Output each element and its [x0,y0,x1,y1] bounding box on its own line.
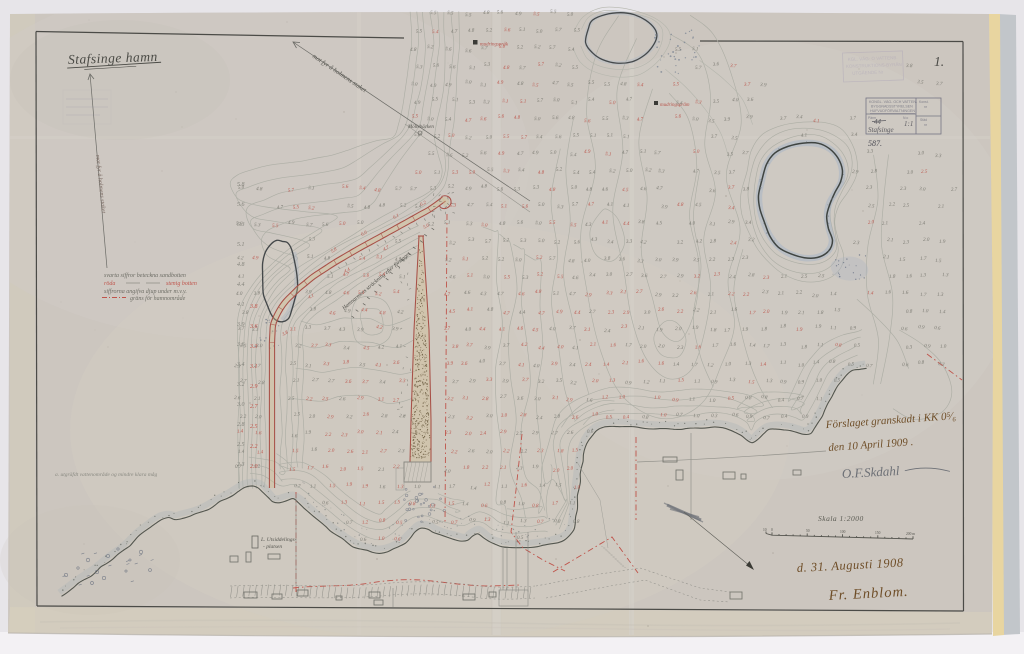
svg-text:5.5: 5.5 [673,81,680,88]
svg-text:1.9: 1.9 [781,310,788,316]
svg-text:1.9: 1.9 [305,429,312,436]
svg-text:5.7: 5.7 [410,186,417,192]
svg-text:4.8: 4.8 [325,290,332,296]
svg-text:4.1: 4.1 [623,203,629,209]
svg-text:3.4: 3.4 [607,239,614,246]
svg-text:2.7: 2.7 [380,448,388,455]
svg-text:2.8: 2.8 [554,413,561,420]
svg-text:3.9: 3.9 [447,360,454,367]
svg-text:1.6: 1.6 [322,464,329,470]
svg-text:1.9: 1.9 [362,483,370,490]
svg-text:5.0: 5.0 [550,150,557,156]
svg-text:4.8: 4.8 [481,183,488,190]
svg-text:1.3: 1.3 [729,377,736,383]
svg-text:5.7: 5.7 [549,45,556,51]
svg-text:4.8: 4.8 [468,28,475,34]
svg-text:1.1: 1.1 [503,520,510,527]
svg-text:1.5: 1.5 [899,257,906,263]
svg-text:5.4: 5.4 [393,289,400,295]
svg-text:2.3: 2.3 [728,256,736,263]
svg-text:3.0: 3.0 [907,169,914,176]
svg-text:3.0: 3.0 [644,310,651,316]
svg-text:4.0: 4.0 [479,358,487,365]
svg-text:1.1: 1.1 [310,484,317,490]
svg-text:1.3: 1.3 [780,341,787,348]
svg-text:5.4: 5.4 [486,202,493,208]
svg-text:0.8: 0.8 [835,342,843,349]
svg-text:3.5: 3.5 [714,170,721,176]
svg-text:3.8: 3.8 [604,256,611,262]
svg-text:4.1: 4.1 [518,362,525,369]
svg-text:2.1: 2.1 [293,378,300,384]
svg-text:2.0: 2.0 [486,449,493,456]
svg-text:5.5: 5.5 [602,116,609,122]
svg-text:2.4: 2.4 [585,362,592,368]
svg-text:5.4: 5.4 [379,272,386,278]
svg-text:4.9: 4.9 [414,100,421,106]
svg-text:1.3: 1.3 [942,272,949,278]
svg-text:3.6: 3.6 [517,396,524,402]
svg-text:1.3: 1.3 [920,272,928,279]
svg-text:4.8: 4.8 [256,186,263,192]
svg-text:2.2: 2.2 [393,464,400,470]
svg-text:3.7: 3.7 [499,361,506,367]
svg-text:0.4: 0.4 [778,397,786,404]
svg-text:5.0: 5.0 [538,238,545,244]
svg-text:1.3: 1.3 [341,499,348,506]
svg-text:1.5: 1.5 [378,500,385,506]
svg-text:5.0: 5.0 [448,133,455,139]
svg-text:4.5: 4.5 [622,187,629,193]
svg-text:4.7: 4.7 [467,202,474,208]
svg-text:5.6: 5.6 [480,150,487,156]
svg-text:2.3: 2.3 [903,239,911,246]
svg-text:3.5: 3.5 [556,378,563,384]
svg-text:1.8: 1.8 [557,448,564,455]
svg-text:0.6: 0.6 [901,326,908,332]
svg-text:1.9: 1.9 [532,464,539,470]
svg-text:4.4: 4.4 [237,281,245,288]
svg-text:0.7: 0.7 [797,396,804,402]
svg-text:3.5: 3.5 [727,151,734,158]
svg-text:4.2: 4.2 [640,239,648,246]
svg-text:4.9: 4.9 [344,308,351,314]
svg-text:4.8: 4.8 [568,115,575,121]
svg-text:3.7: 3.7 [569,325,576,331]
svg-text:1.4: 1.4 [830,291,837,297]
svg-text:5.3: 5.3 [520,238,527,244]
svg-text:5.2: 5.2 [517,44,524,51]
svg-text:5.6: 5.6 [584,118,591,124]
svg-text:0.7: 0.7 [763,415,771,422]
svg-text:4.0: 4.0 [689,220,696,227]
svg-text:2.5: 2.5 [294,411,301,418]
svg-text:O.F.Skdahl: O.F.Skdahl [841,463,900,481]
svg-text:3.2: 3.2 [672,293,679,299]
svg-text:5.4: 5.4 [676,100,683,107]
svg-text:5.5: 5.5 [549,220,556,226]
svg-text:4.7: 4.7 [626,96,634,103]
svg-text:5.1: 5.1 [462,256,469,263]
svg-text:3.8: 3.8 [249,304,258,310]
svg-text:2.0: 2.0 [567,465,574,472]
svg-text:2.8: 2.8 [482,396,489,402]
svg-text:3.7: 3.7 [311,343,318,349]
svg-text:4.4: 4.4 [574,310,581,316]
svg-text:2.0: 2.0 [763,309,770,315]
svg-text:5.3: 5.3 [254,222,261,228]
svg-text:3.7: 3.7 [452,379,459,385]
svg-text:5.5: 5.5 [567,82,574,89]
svg-text:5.2: 5.2 [308,205,315,212]
svg-text:2.3: 2.3 [445,430,452,436]
svg-text:1.8: 1.8 [889,274,896,280]
svg-text:1.1: 1.1 [434,484,441,490]
svg-text:5.6: 5.6 [433,62,440,69]
svg-text:3.0: 3.0 [357,429,364,436]
svg-text:5.2: 5.2 [462,153,469,159]
svg-text:3.1: 3.1 [620,289,627,295]
svg-text:5.0: 5.0 [481,222,489,229]
svg-text:2.1: 2.1 [778,290,785,297]
svg-text:0.9: 0.9 [802,414,809,420]
svg-text:4.3: 4.3 [591,237,598,243]
svg-text:4.2: 4.2 [521,342,528,348]
svg-text:3.7: 3.7 [362,379,369,385]
svg-text:4.2: 4.2 [237,255,244,261]
svg-text:a. utgräfdt vattenområde og mi: a. utgräfdt vattenområde og mindre klara… [55,471,158,478]
svg-text:5.6: 5.6 [322,222,329,228]
svg-text:1.0: 1.0 [922,308,929,314]
svg-text:2.7: 2.7 [626,272,633,278]
svg-text:3.4: 3.4 [796,114,803,120]
svg-text:5.1: 5.1 [434,170,441,176]
svg-text:3.3: 3.3 [305,324,312,331]
svg-text:5.6: 5.6 [342,184,349,190]
svg-text:3.9: 3.9 [746,114,753,120]
svg-text:3.8: 3.8 [906,63,913,69]
svg-text:4.9: 4.9 [556,309,563,315]
svg-text:1.7: 1.7 [307,465,314,472]
svg-text:5.0: 5.0 [411,81,419,88]
svg-text:5.6: 5.6 [574,239,582,246]
svg-text:5.1: 5.1 [605,151,612,158]
svg-text:2.0: 2.0 [675,326,682,332]
svg-text:3.1: 3.1 [305,363,312,370]
svg-text:4.7: 4.7 [622,150,629,156]
svg-text:4.8: 4.8 [620,81,627,88]
svg-text:5.7: 5.7 [549,256,556,262]
svg-text:3.0: 3.0 [919,186,927,193]
svg-text:4.1: 4.1 [499,326,506,333]
svg-text:5.7: 5.7 [306,222,313,229]
svg-text:5.0: 5.0 [515,257,522,264]
svg-text:5.1: 5.1 [444,220,451,226]
svg-text:4.1: 4.1 [607,201,614,208]
svg-text:2.7: 2.7 [328,378,335,384]
svg-text:3.4: 3.4 [589,272,596,279]
svg-text:1.5: 1.5 [357,466,364,472]
svg-text:5.6: 5.6 [363,273,370,279]
svg-text:5.7: 5.7 [485,238,492,245]
svg-text:4.6: 4.6 [572,275,579,281]
svg-text:5.5: 5.5 [573,132,580,139]
svg-text:5.2: 5.2 [434,133,441,140]
svg-text:2.9: 2.9 [585,292,592,299]
svg-text:1.8: 1.8 [801,344,809,351]
svg-text:5.0: 5.0 [626,168,633,174]
svg-text:1.8: 1.8 [817,310,824,316]
svg-text:5.2: 5.2 [400,203,407,209]
svg-text:3.1: 3.1 [552,395,558,401]
svg-text:2.7: 2.7 [551,430,559,437]
svg-text:3.8: 3.8 [242,310,249,316]
svg-text:2.8: 2.8 [710,238,718,245]
svg-text:5.4: 5.4 [359,256,366,262]
svg-text:2.3: 2.3 [677,345,684,351]
svg-text:0.5: 0.5 [834,377,841,384]
svg-text:2.4: 2.4 [392,429,399,435]
svg-text:2.6: 2.6 [567,430,574,436]
svg-text:3.2: 3.2 [570,380,577,387]
svg-text:5.5: 5.5 [487,167,494,173]
svg-text:3.6: 3.6 [641,273,648,279]
svg-text:1.4: 1.4 [539,483,546,489]
svg-text:5.4: 5.4 [637,82,644,88]
svg-text:1.4: 1.4 [257,449,265,456]
svg-text:2.1: 2.1 [708,291,715,298]
svg-text:1.4: 1.4 [238,449,245,455]
svg-text:5.4: 5.4 [573,170,580,176]
svg-text:0.8: 0.8 [906,309,913,315]
svg-text:2.3: 2.3 [742,255,749,261]
svg-text:5.0: 5.0 [571,184,578,191]
svg-text:2.9: 2.9 [357,395,364,402]
svg-text:2.3: 2.3 [516,465,524,472]
svg-text:5.2: 5.2 [645,167,652,174]
svg-text:5.1: 5.1 [623,134,629,140]
svg-text:5.2: 5.2 [427,44,434,50]
svg-text:2.0: 2.0 [923,237,930,243]
svg-text:5.6: 5.6 [675,113,682,120]
svg-text:1.6: 1.6 [586,397,594,404]
svg-text:5.3: 5.3 [416,64,423,71]
svg-text:5.0: 5.0 [692,116,700,123]
svg-text:1.3: 1.3 [484,517,491,523]
svg-text:3.2: 3.2 [748,237,755,243]
svg-text:2.1: 2.1 [798,310,804,316]
svg-text:1.6: 1.6 [902,290,909,296]
svg-text:2.7: 2.7 [500,394,507,400]
svg-text:5.4: 5.4 [518,167,525,174]
svg-text:0.6: 0.6 [481,503,488,509]
svg-text:3.2: 3.2 [447,396,454,402]
svg-text:5.0: 5.0 [465,79,473,86]
svg-text:Stafsinge: Stafsinge [868,126,894,134]
svg-text:3.6: 3.6 [236,342,245,348]
svg-text:4.1: 4.1 [801,132,808,139]
svg-text:0.6: 0.6 [322,500,329,507]
svg-text:1.6: 1.6 [610,342,618,349]
svg-text:5.4: 5.4 [589,170,596,176]
svg-text:3.6: 3.6 [709,188,716,194]
svg-text:BYGGNADSSTYRELSEN: BYGGNADSSTYRELSEN [871,105,913,109]
svg-text:2.9: 2.9 [655,292,662,299]
svg-text:1.0: 1.0 [798,362,805,369]
svg-text:4.1: 4.1 [375,362,382,369]
svg-text:3.1: 3.1 [709,221,716,228]
svg-text:3.6: 3.6 [345,379,352,385]
svg-text:2.2: 2.2 [482,465,489,471]
svg-text:4.0: 4.0 [533,363,540,369]
svg-text:1.3: 1.3 [745,361,752,367]
svg-text:2.3: 2.3 [608,309,615,316]
svg-text:KONGL. VÄG- OCH VATTEN-: KONGL. VÄG- OCH VATTEN- [869,100,918,104]
svg-text:1.1: 1.1 [816,396,823,402]
svg-text:5.0: 5.0 [553,97,560,104]
svg-text:4.7: 4.7 [277,204,284,211]
svg-text:1.5: 1.5 [834,307,841,313]
svg-text:4.7: 4.7 [444,292,451,298]
svg-text:3.9: 3.9 [357,327,364,333]
svg-text:5.6: 5.6 [465,48,472,55]
svg-text:2.2: 2.2 [240,414,247,420]
svg-text:2.4: 2.4 [604,328,611,334]
svg-text:0.6: 0.6 [934,325,942,332]
svg-text:4.7: 4.7 [451,29,458,35]
svg-text:2.4: 2.4 [480,430,487,437]
svg-text:1.0: 1.0 [709,398,716,404]
svg-text:3.4: 3.4 [728,205,735,211]
svg-text:2.2: 2.2 [306,396,313,403]
svg-text:5.5: 5.5 [272,223,279,229]
svg-text:0: 0 [771,528,773,532]
svg-text:1.8: 1.8 [761,326,769,333]
svg-text:2.1: 2.1 [622,360,629,366]
svg-text:5.6: 5.6 [449,64,456,70]
svg-text:1.5: 1.5 [748,379,756,386]
svg-text:2.1: 2.1 [710,310,717,316]
svg-text:1.6: 1.6 [291,433,298,439]
svg-text:5.4: 5.4 [359,185,367,192]
svg-text:5.2: 5.2 [534,44,541,50]
svg-text:5.5: 5.5 [504,274,511,281]
svg-text:5.6: 5.6 [498,113,505,120]
svg-text:1.6: 1.6 [255,430,262,436]
svg-text:4.9: 4.9 [497,80,504,86]
svg-text:2.2: 2.2 [503,448,510,455]
svg-text:3.9: 3.9 [672,257,679,264]
svg-text:1.2: 1.2 [643,379,650,386]
svg-text:3.1: 3.1 [289,326,296,333]
svg-text:4.4: 4.4 [538,345,546,352]
svg-text:1.6: 1.6 [638,358,646,365]
svg-text:3.7: 3.7 [730,63,737,69]
svg-text:1.6: 1.6 [311,447,318,453]
svg-text:1.4: 1.4 [939,309,946,315]
svg-text:1.5: 1.5 [329,483,336,489]
svg-text:4.4: 4.4 [361,307,368,314]
svg-text:mudringspråm: mudringspråm [660,102,690,108]
svg-text:5.1: 5.1 [571,100,577,106]
svg-text:4.8: 4.8 [499,221,506,227]
svg-text:5.2: 5.2 [448,183,455,190]
svg-text:4.6: 4.6 [449,274,456,281]
svg-text:5.5: 5.5 [532,82,540,89]
svg-text:3.6: 3.6 [249,324,258,330]
svg-text:1.5: 1.5 [292,448,299,454]
svg-text:2.3: 2.3 [341,432,348,439]
svg-text:5.3: 5.3 [450,202,457,209]
svg-text:0.8: 0.8 [500,499,507,506]
svg-text:2.2: 2.2 [709,257,716,263]
svg-text:1.1: 1.1 [780,360,787,366]
svg-text:1.0: 1.0 [816,377,823,384]
svg-text:5.3: 5.3 [484,62,491,68]
svg-text:2.5: 2.5 [818,273,825,279]
svg-text:3.9: 3.9 [392,326,399,332]
svg-text:0.3: 0.3 [906,344,913,351]
svg-text:1.4: 1.4 [237,428,244,435]
svg-text:4.9: 4.9 [532,150,539,156]
svg-text:0.7: 0.7 [346,520,353,526]
svg-text:2.3: 2.3 [237,462,245,468]
svg-text:2.9: 2.9 [532,430,539,436]
svg-text:4.8: 4.8 [503,65,510,71]
svg-text:5.0: 5.0 [534,116,541,122]
svg-text:1.0: 1.0 [693,413,700,419]
svg-text:1.0: 1.0 [940,344,947,350]
svg-text:4.9: 4.9 [288,220,295,226]
svg-text:1.: 1. [934,54,944,69]
svg-text:2.8: 2.8 [258,380,265,386]
svg-text:4.9: 4.9 [252,255,259,261]
svg-text:0.7: 0.7 [866,363,873,369]
svg-text:3.9: 3.9 [484,345,491,352]
svg-text:4.4: 4.4 [479,326,486,333]
svg-text:5.0: 5.0 [415,170,422,176]
svg-text:4.9: 4.9 [584,149,591,155]
svg-text:4.7: 4.7 [637,116,644,123]
svg-text:5.2: 5.2 [445,257,452,264]
svg-text:2.0: 2.0 [592,378,599,384]
svg-text:4.9: 4.9 [445,82,452,88]
svg-text:2.9: 2.9 [566,397,573,404]
svg-text:1.2: 1.2 [484,481,491,488]
svg-text:stenig botten: stenig botten [166,281,197,287]
svg-text:0.8: 0.8 [761,394,769,401]
svg-text:5.2: 5.2 [375,291,382,297]
svg-text:1.4: 1.4 [673,362,680,368]
svg-text:2.9: 2.9 [677,273,684,280]
svg-text:3.7: 3.7 [711,134,718,140]
svg-text:2.6: 2.6 [339,396,346,402]
svg-text:5.6: 5.6 [522,204,529,210]
svg-text:2.3: 2.3 [866,185,873,191]
svg-text:3.0: 3.0 [486,413,493,419]
svg-text:4.6: 4.6 [343,290,350,296]
svg-text:5.5: 5.5 [416,28,423,35]
svg-text:2.5: 2.5 [290,361,297,367]
svg-text:3.7: 3.7 [936,81,943,87]
svg-text:röda: röda [104,281,115,287]
svg-text:5.6: 5.6 [504,27,511,33]
svg-text:1.3: 1.3 [429,503,436,510]
svg-text:5.0: 5.0 [538,202,545,208]
svg-text:5.5: 5.5 [588,80,595,86]
svg-text:2.1: 2.1 [376,430,383,436]
svg-text:5.5: 5.5 [430,10,437,16]
